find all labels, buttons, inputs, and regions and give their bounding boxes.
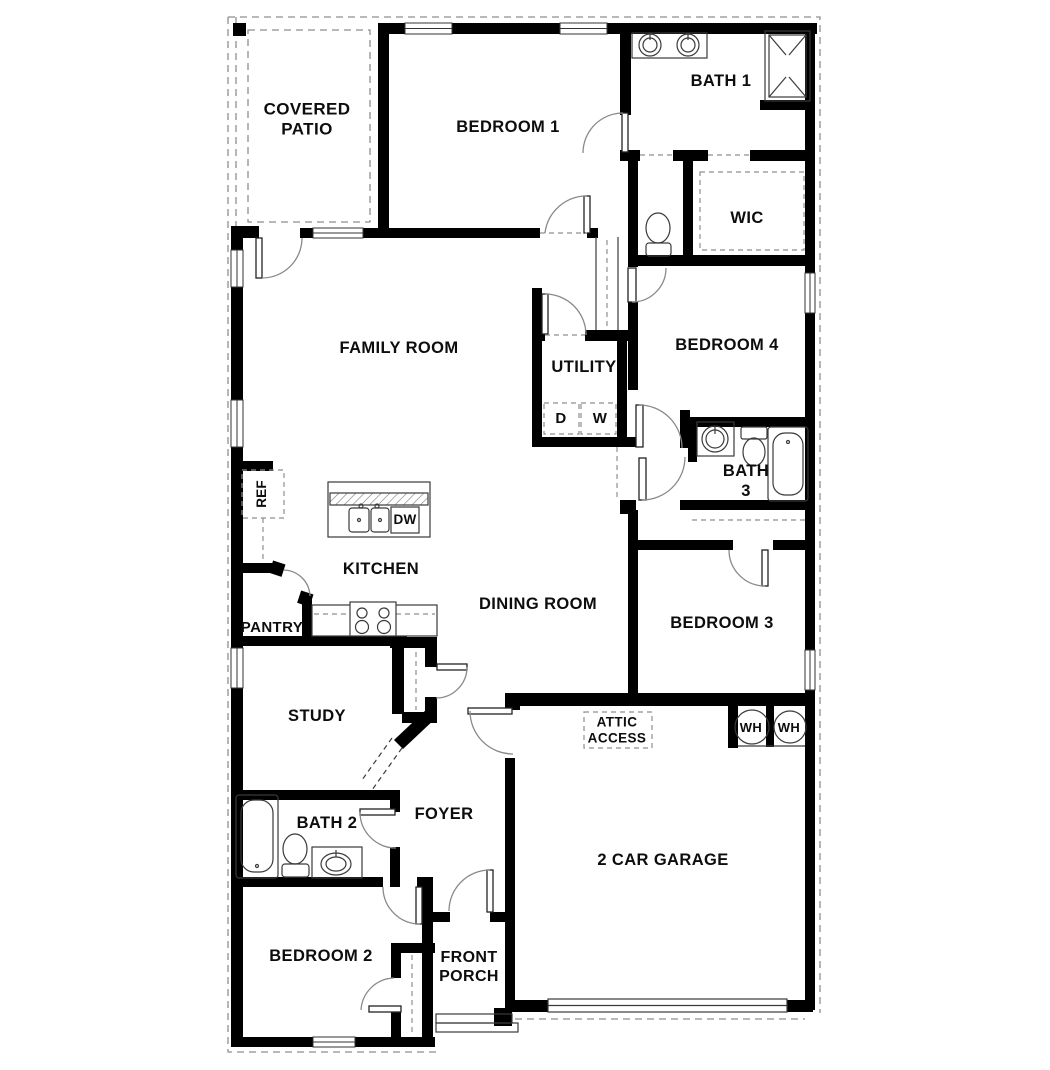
study-opening-jamb xyxy=(362,738,392,780)
bath1-vanity-icon xyxy=(632,33,707,58)
room-label-garage: 2 CAR GARAGE xyxy=(597,851,728,871)
bath1-door-icon xyxy=(583,113,628,153)
bath3-toilet-icon xyxy=(741,427,767,466)
utility-door-icon xyxy=(542,294,586,335)
refrigerator-label: REF xyxy=(254,480,270,508)
room-label-front-porch: FRONT PORCH xyxy=(439,948,499,986)
room-label-wic: WIC xyxy=(730,209,763,229)
fixtures xyxy=(236,31,810,878)
water-heater-label: WH xyxy=(740,720,762,736)
pantry-door-post xyxy=(269,560,285,576)
bedroom3-door-icon xyxy=(729,550,768,586)
patio-door-icon xyxy=(256,238,302,278)
water-heater-label: WH xyxy=(778,720,800,736)
room-label-bedroom2: BEDROOM 2 xyxy=(269,947,373,967)
dryer-label: D xyxy=(555,410,566,428)
room-label-utility: UTILITY xyxy=(551,358,616,378)
room-label-bedroom4: BEDROOM 4 xyxy=(675,336,779,356)
windows xyxy=(231,23,815,1047)
hall-door-icon xyxy=(636,405,682,448)
room-label-bath2: BATH 2 xyxy=(297,814,358,834)
floor-plan-drawing xyxy=(0,0,1050,1070)
window-icon xyxy=(231,23,815,1047)
bedroom1-door-icon xyxy=(545,196,590,233)
room-label-covered-patio: COVERED PATIO xyxy=(264,100,351,141)
room-label-bath1: BATH 1 xyxy=(691,72,752,92)
bedroom4-door-icon xyxy=(628,268,666,302)
bath3-door-icon xyxy=(639,457,685,500)
bath3-vanity-icon xyxy=(697,422,734,456)
study-opening-jamb xyxy=(372,748,402,790)
room-label-foyer: FOYER xyxy=(415,805,474,825)
shower-icon xyxy=(765,31,810,101)
walls xyxy=(231,23,817,1047)
room-label-pantry: PANTRY xyxy=(241,619,303,637)
bedroom2-door-icon xyxy=(383,887,422,924)
bath2-vanity-icon xyxy=(312,847,362,878)
room-label-bath3: BATH 3 xyxy=(723,462,769,502)
garage-entry-door-icon xyxy=(468,708,513,754)
bedroom2-closet-door-icon xyxy=(361,978,401,1012)
front-door-icon xyxy=(449,870,493,912)
coat-closet-door-icon xyxy=(436,664,467,698)
washer-label: W xyxy=(593,410,608,428)
floor-plan: COVERED PATIO BEDROOM 1 BATH 1 WIC FAMIL… xyxy=(0,0,1050,1070)
room-label-study: STUDY xyxy=(288,707,346,727)
attic-access-label: ATTIC ACCESS xyxy=(588,714,647,745)
room-label-bedroom3: BEDROOM 3 xyxy=(670,614,774,634)
room-label-family-room: FAMILY ROOM xyxy=(340,339,459,359)
room-label-dining-room: DINING ROOM xyxy=(479,595,597,615)
bath3-tub-icon xyxy=(768,427,808,501)
room-label-kitchen: KITCHEN xyxy=(343,560,419,580)
kitchen-island-icon xyxy=(328,482,430,537)
bath1-toilet-icon xyxy=(646,213,671,256)
room-label-bedroom1: BEDROOM 1 xyxy=(456,118,560,138)
dishwasher-label: DW xyxy=(394,512,417,528)
bath2-toilet-icon xyxy=(282,834,309,877)
kitchen-counter-icon xyxy=(312,602,437,636)
bath2-door-icon xyxy=(360,809,396,848)
